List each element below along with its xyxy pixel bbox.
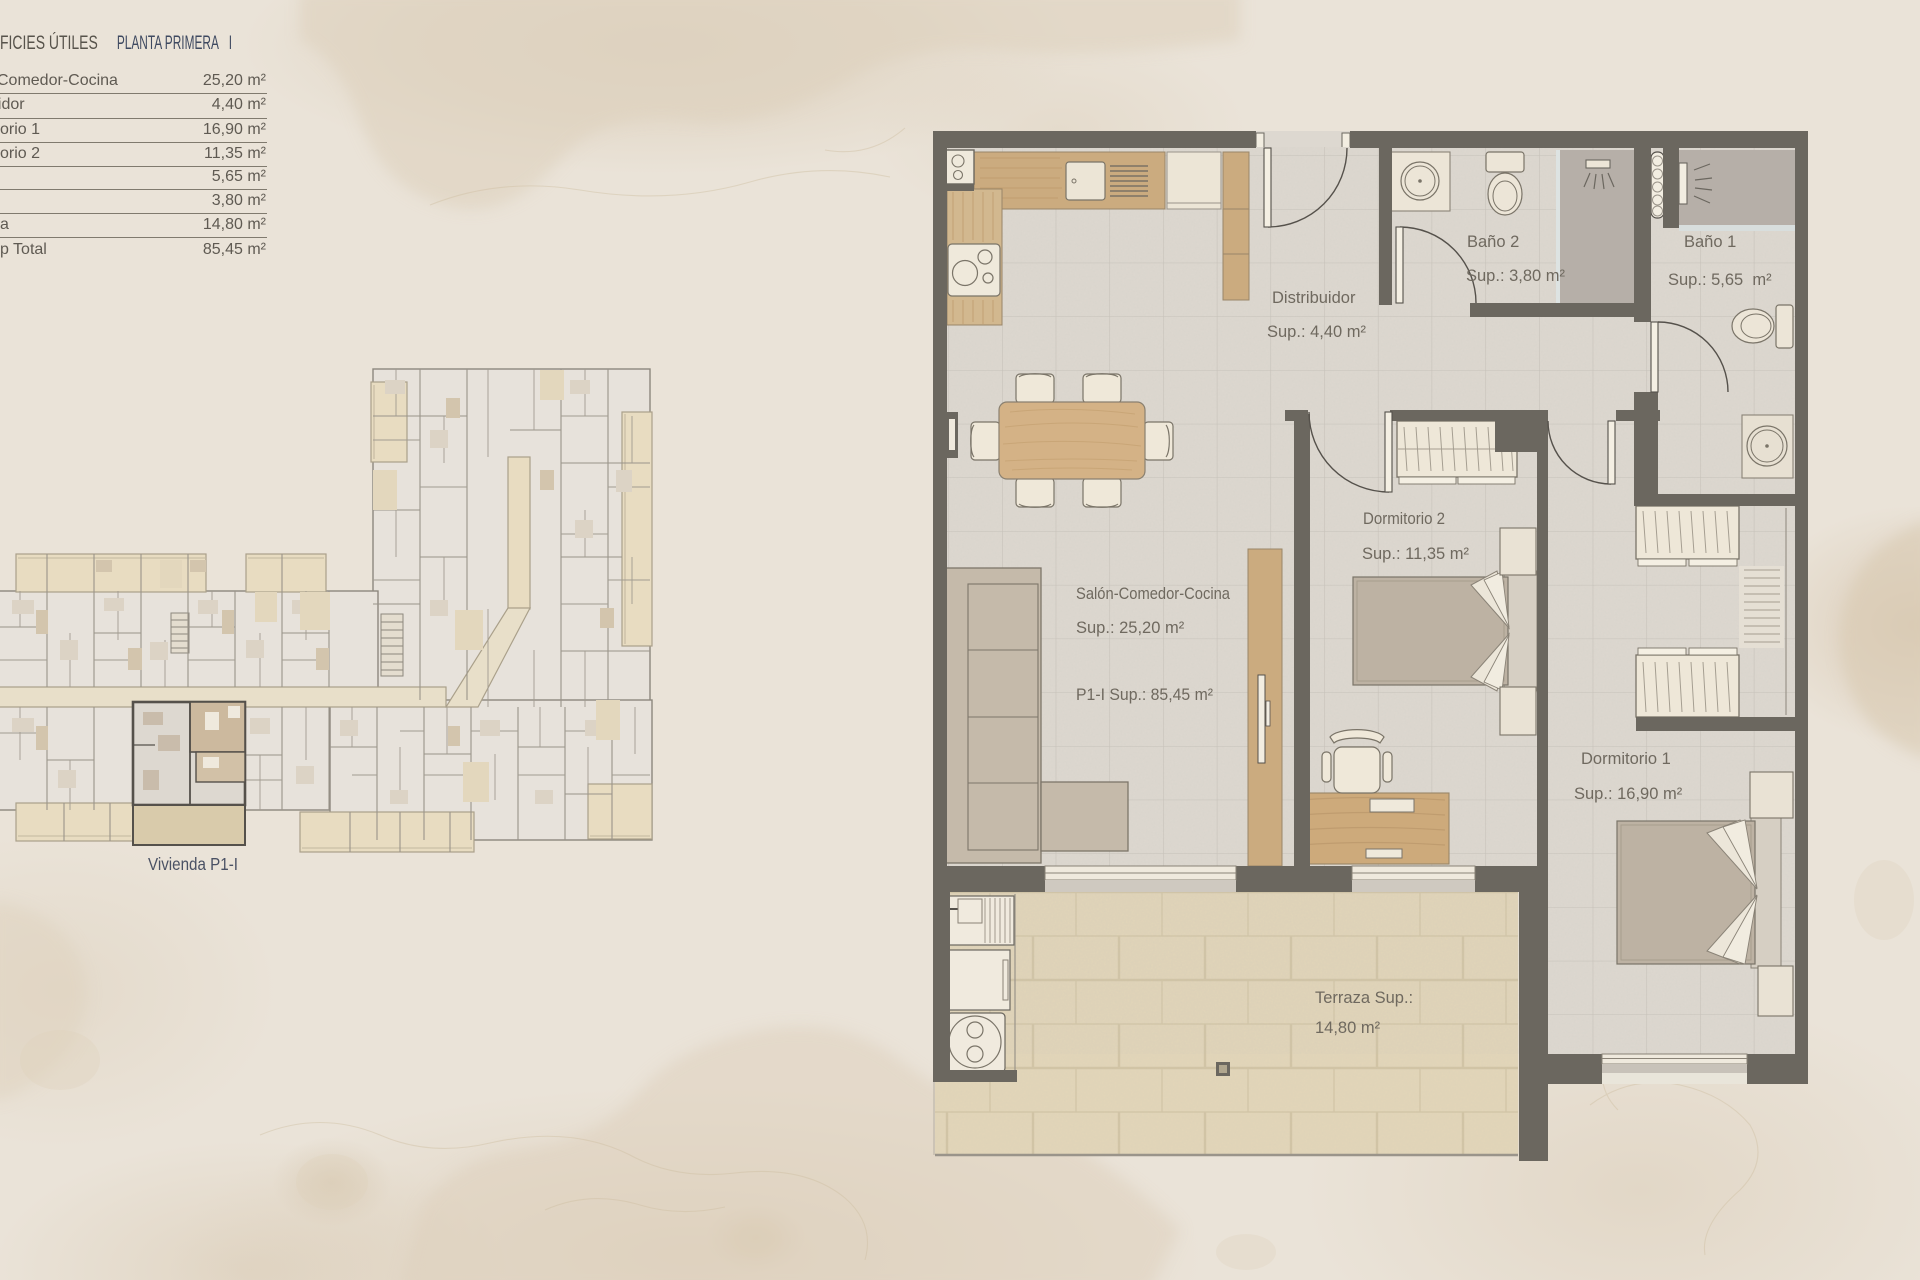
svg-text:Terraza Sup.:: Terraza Sup.: bbox=[1315, 989, 1413, 1007]
svg-text:Distribuidor: Distribuidor bbox=[1272, 289, 1356, 307]
svg-text:P1-I Sup.: 85,45 m²: P1-I Sup.: 85,45 m² bbox=[1076, 686, 1213, 704]
svg-text:Salón-Comedor-Cocina: Salón-Comedor-Cocina bbox=[1076, 585, 1231, 603]
svg-text:Baño 2: Baño 2 bbox=[1467, 233, 1519, 251]
svg-text:Sup.: 25,20 m²: Sup.: 25,20 m² bbox=[1076, 619, 1185, 637]
svg-text:Dormitorio 2: Dormitorio 2 bbox=[1363, 510, 1445, 528]
svg-text:Baño 1: Baño 1 bbox=[1684, 233, 1736, 251]
svg-text:Sup.: 3,80 m²: Sup.: 3,80 m² bbox=[1466, 267, 1566, 285]
svg-text:14,80 m²: 14,80 m² bbox=[1315, 1019, 1381, 1037]
svg-text:Sup.: 5,65 m²: Sup.: 5,65 m² bbox=[1668, 271, 1772, 289]
svg-text:Vivienda P1-I: Vivienda P1-I bbox=[148, 854, 238, 874]
svg-text:Sup.: 16,90 m²: Sup.: 16,90 m² bbox=[1574, 785, 1683, 803]
svg-text:Sup.: 4,40 m²: Sup.: 4,40 m² bbox=[1267, 323, 1367, 341]
svg-text:Sup.: 11,35 m²: Sup.: 11,35 m² bbox=[1362, 545, 1470, 563]
svg-text:Dormitorio 1: Dormitorio 1 bbox=[1581, 750, 1671, 768]
